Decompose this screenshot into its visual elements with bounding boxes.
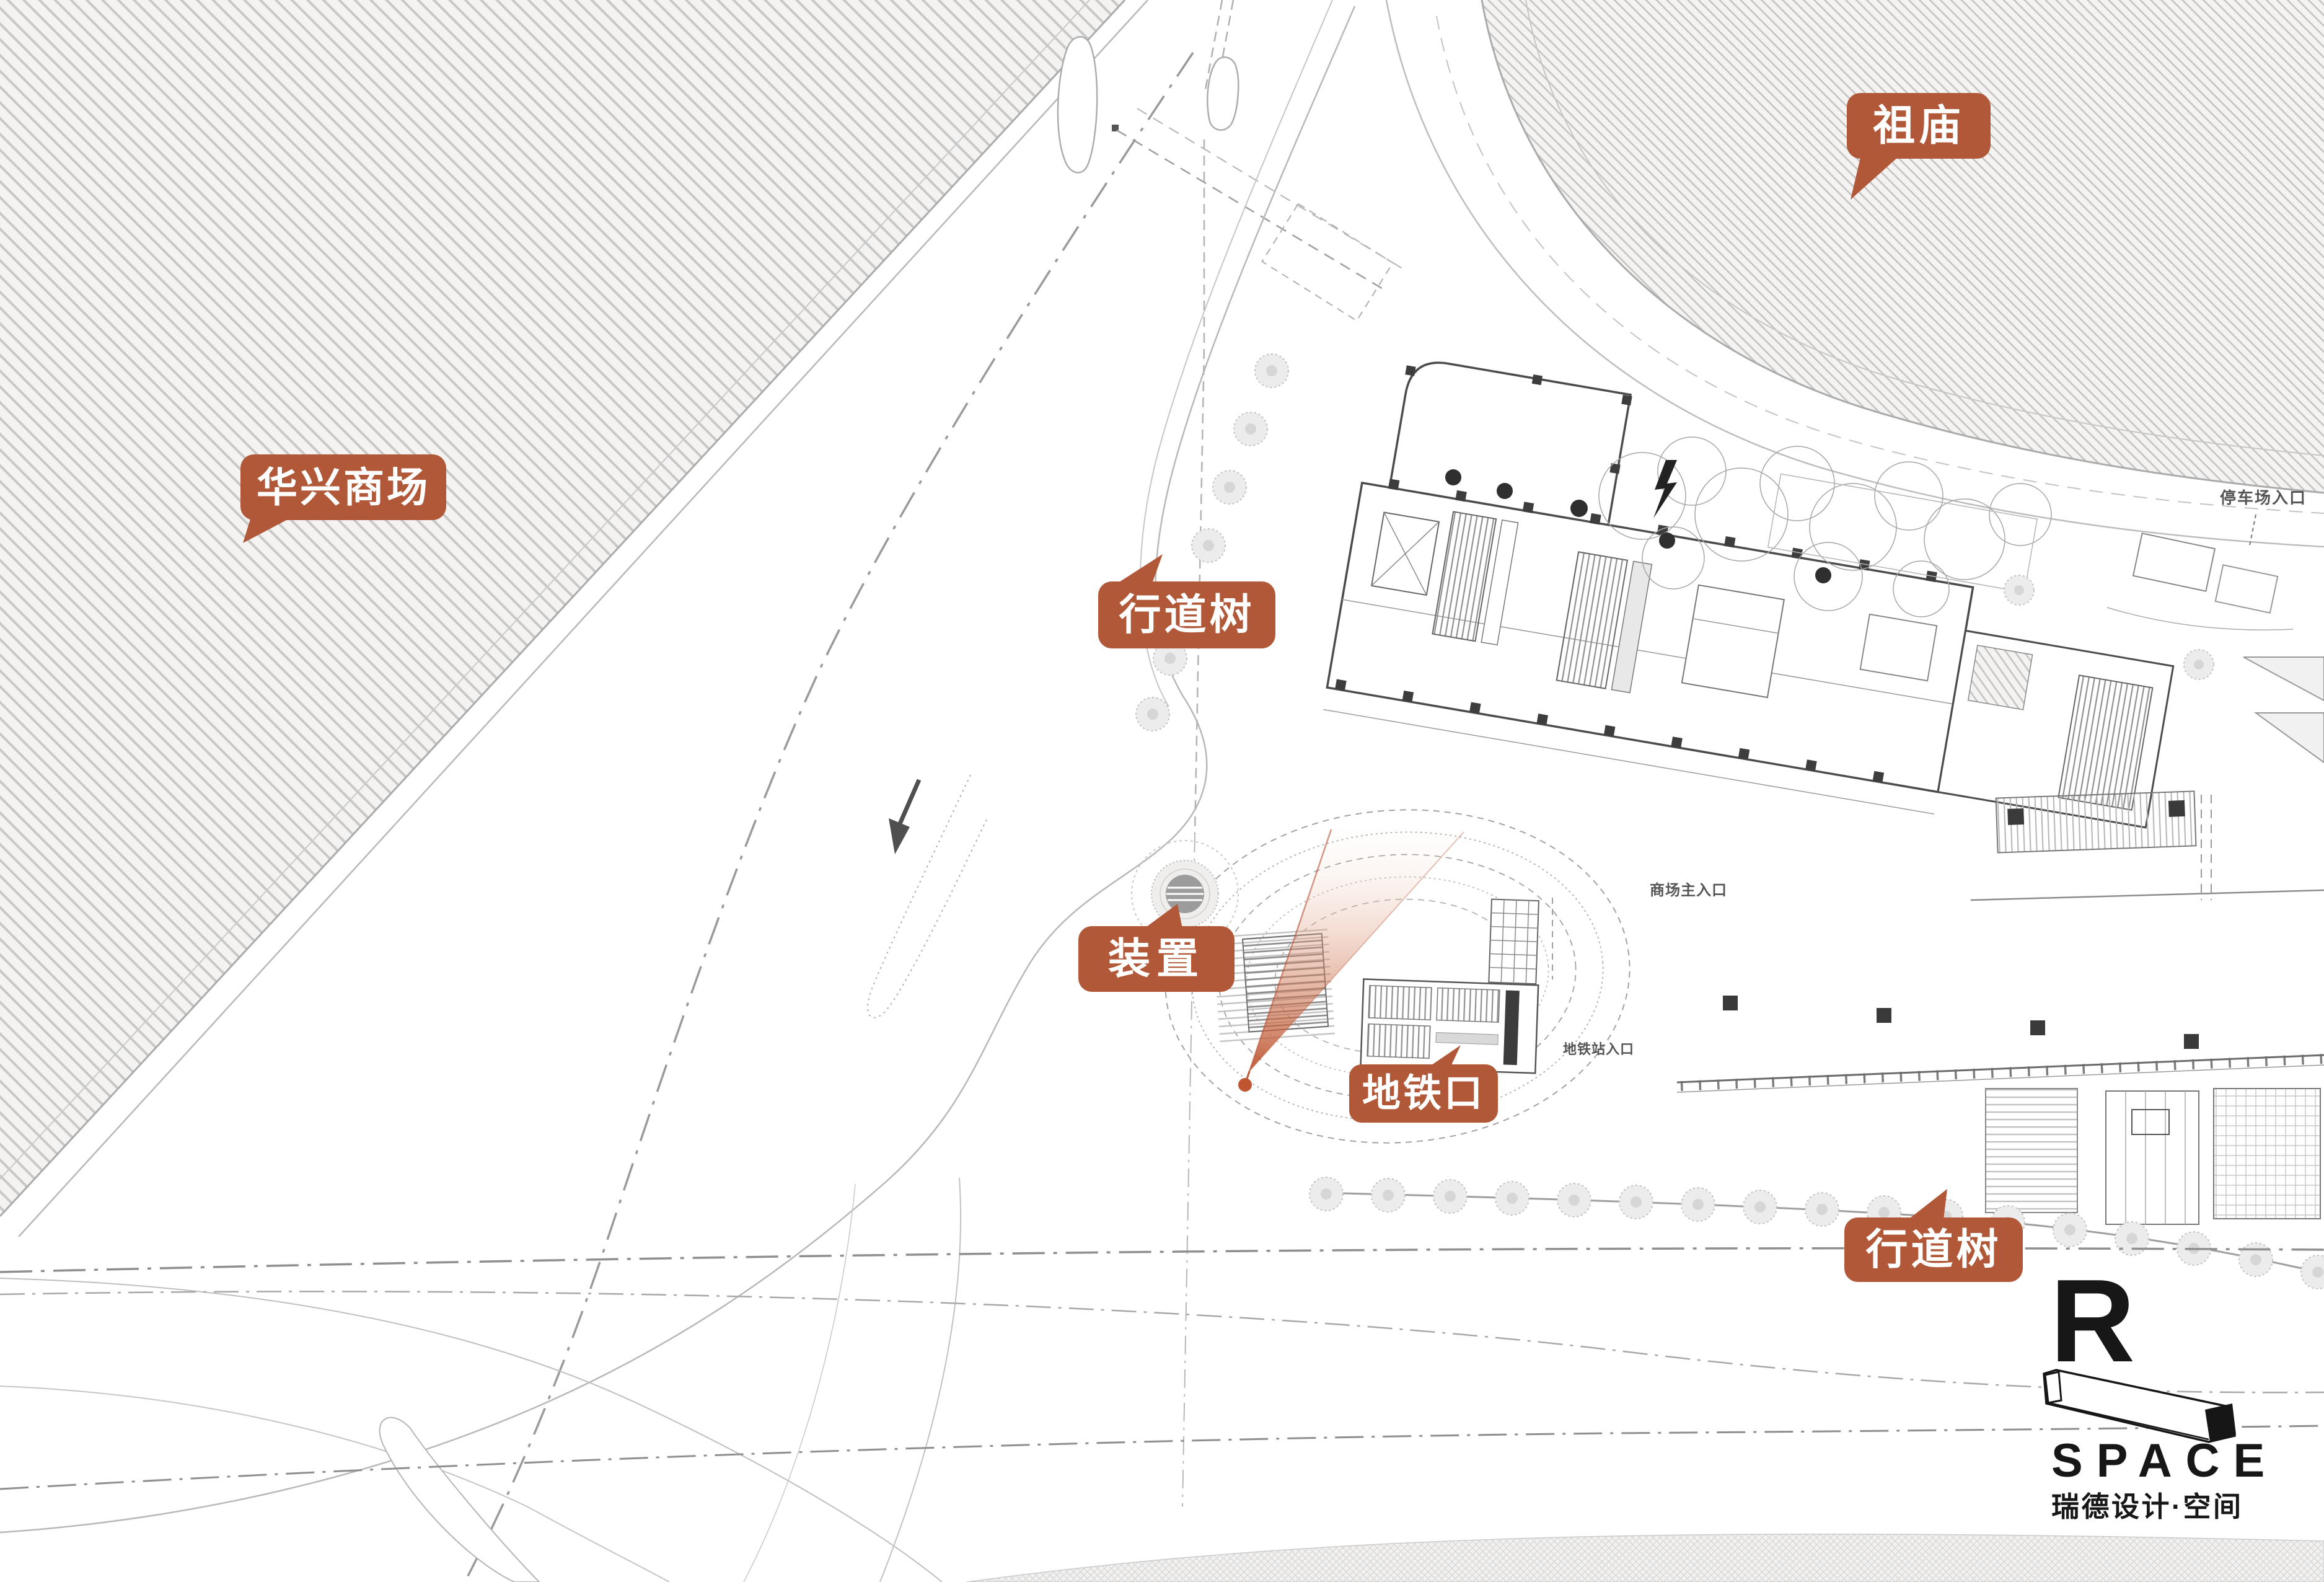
- mall-main-entrance-text: 商场主入口: [1650, 882, 1727, 899]
- label-xingdaoshu-top: 行道树: [1098, 554, 1275, 648]
- parking-entrance-text: 停车场入口: [2220, 488, 2307, 507]
- arcade-columns: [1723, 996, 2199, 1049]
- logo-space-text: SPACE: [2051, 1434, 2278, 1487]
- hatch-region-huaxing: [0, 0, 1125, 1216]
- label-tail: [1908, 1189, 1947, 1220]
- tree: [2184, 650, 2214, 679]
- tree: [1136, 697, 1169, 731]
- median-island: [1058, 37, 1097, 172]
- tree: [1495, 1182, 1529, 1215]
- dashdot-lines: [0, 1248, 2324, 1489]
- logo-chinese-text: 瑞德设计·空间: [2051, 1491, 2243, 1522]
- tree: [1433, 1180, 1467, 1213]
- label-text: 地铁口: [1362, 1072, 1485, 1115]
- subway-entrance-structure: [1360, 895, 1541, 1074]
- median-island: [1207, 57, 1238, 130]
- tree: [2301, 1255, 2324, 1289]
- logo-rspace: R SPACE 瑞德设计·空间: [2044, 1255, 2278, 1522]
- site-plan-canvas: 停车场入口 商场主入口 地铁站入口 R SPACE 瑞德设计·空间 祖庙 华兴商…: [0, 0, 2324, 1582]
- tree: [1234, 412, 1267, 446]
- tree: [1743, 1190, 1777, 1224]
- tree: [2115, 1222, 2149, 1255]
- label-text: 装置: [1108, 935, 1205, 983]
- crosswalk: [1262, 204, 1393, 321]
- tree: [1805, 1193, 1839, 1226]
- turn-arrow-head-icon: [889, 818, 910, 854]
- tree: [2239, 1243, 2273, 1276]
- median-island-dotted: [868, 775, 987, 1018]
- label-text: 行道树: [1865, 1226, 2001, 1273]
- tree: [1213, 471, 1246, 504]
- tree: [1255, 354, 1288, 387]
- arcade-ticks: [1681, 1059, 2324, 1086]
- marker-dot: [1238, 1078, 1252, 1092]
- logo-letter-r: R: [2050, 1255, 2135, 1387]
- tree: [1681, 1188, 1715, 1221]
- tree: [1192, 529, 1225, 562]
- logo-beam-icon: [2044, 1370, 2236, 1442]
- lightning-icon: [1653, 460, 1677, 518]
- tree: [2004, 575, 2034, 605]
- bus-shelter: [1996, 791, 2196, 852]
- label-text: 华兴商场: [257, 464, 430, 510]
- tree: [1557, 1183, 1591, 1217]
- tree: [1371, 1178, 1405, 1212]
- arcade-and-southeast: [1677, 996, 2324, 1224]
- metro-station-entrance-text: 地铁站入口: [1563, 1041, 1634, 1057]
- label-text: 行道树: [1119, 591, 1254, 639]
- south-hatch-band: [967, 1534, 2324, 1582]
- tree: [1619, 1185, 1653, 1219]
- label-zhuangzhi: 装置: [1078, 904, 1235, 992]
- tree: [2053, 1213, 2087, 1247]
- label-text: 祖庙: [1873, 102, 1965, 149]
- turn-arrow-icon: [897, 780, 919, 829]
- site-plan-page: 停车场入口 商场主入口 地铁站入口 R SPACE 瑞德设计·空间 祖庙 华兴商…: [0, 0, 2324, 1582]
- tree: [1309, 1177, 1343, 1211]
